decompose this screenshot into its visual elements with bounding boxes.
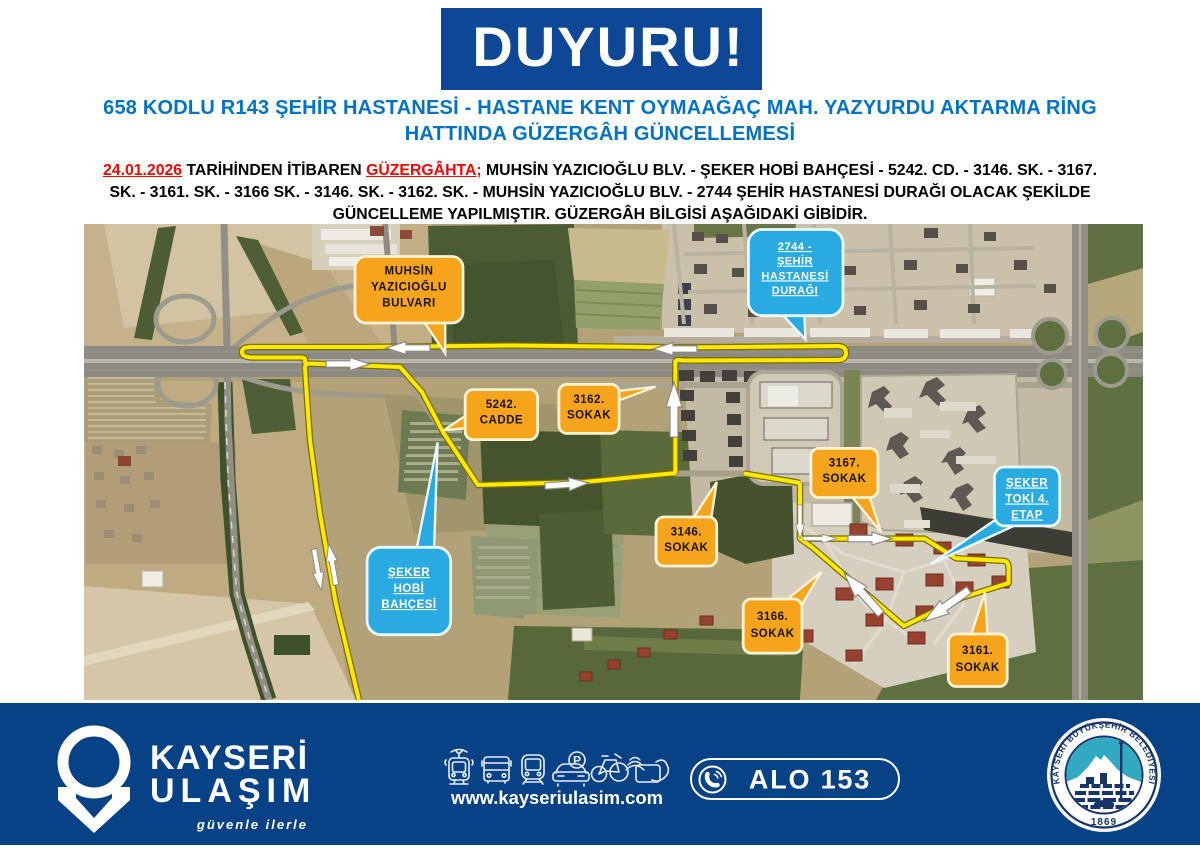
svg-text:3146.: 3146.	[671, 527, 702, 539]
svg-text:ALO 153: ALO 153	[749, 765, 871, 795]
svg-text:SOKAK: SOKAK	[751, 628, 795, 640]
svg-text:güvenle ilerle: güvenle ilerle	[196, 817, 308, 832]
svg-text:SOKAK: SOKAK	[956, 662, 1000, 674]
svg-text:3166.: 3166.	[757, 611, 788, 623]
svg-text:HASTANESİ: HASTANESİ	[761, 269, 828, 282]
svg-text:2744 -: 2744 -	[778, 241, 812, 253]
svg-text:ETAP: ETAP	[1011, 510, 1043, 522]
svg-text:YAZICIOĞLU: YAZICIOĞLU	[371, 281, 447, 294]
svg-text:DURAĞI: DURAĞI	[772, 284, 818, 297]
svg-text:SOKAK: SOKAK	[822, 473, 866, 485]
svg-text:SOKAK: SOKAK	[664, 542, 708, 554]
svg-text:1869: 1869	[1091, 817, 1117, 828]
svg-text:HOBİ: HOBİ	[394, 582, 425, 595]
svg-text:MUHSİN: MUHSİN	[385, 265, 434, 278]
svg-text:BULVARI: BULVARI	[382, 298, 436, 310]
svg-text:ŞEKER: ŞEKER	[388, 567, 430, 579]
svg-text:TOKİ 4.: TOKİ 4.	[1005, 493, 1049, 506]
svg-text:SOKAK: SOKAK	[567, 410, 611, 422]
svg-text:3167.: 3167.	[829, 458, 860, 470]
svg-text:ŞEHİR: ŞEHİR	[777, 255, 813, 268]
svg-text:3161.: 3161.	[962, 645, 993, 657]
svg-text:ULAŞIM: ULAŞIM	[150, 772, 316, 810]
svg-text:5242.: 5242.	[486, 399, 517, 411]
svg-text:www.kayseriulasim.com: www.kayseriulasim.com	[450, 787, 663, 808]
svg-text:3162.: 3162.	[573, 394, 604, 406]
svg-text:BAHÇESİ: BAHÇESİ	[381, 598, 436, 611]
svg-text:CADDE: CADDE	[480, 415, 523, 427]
svg-text:ŞEKER: ŞEKER	[1006, 478, 1048, 490]
